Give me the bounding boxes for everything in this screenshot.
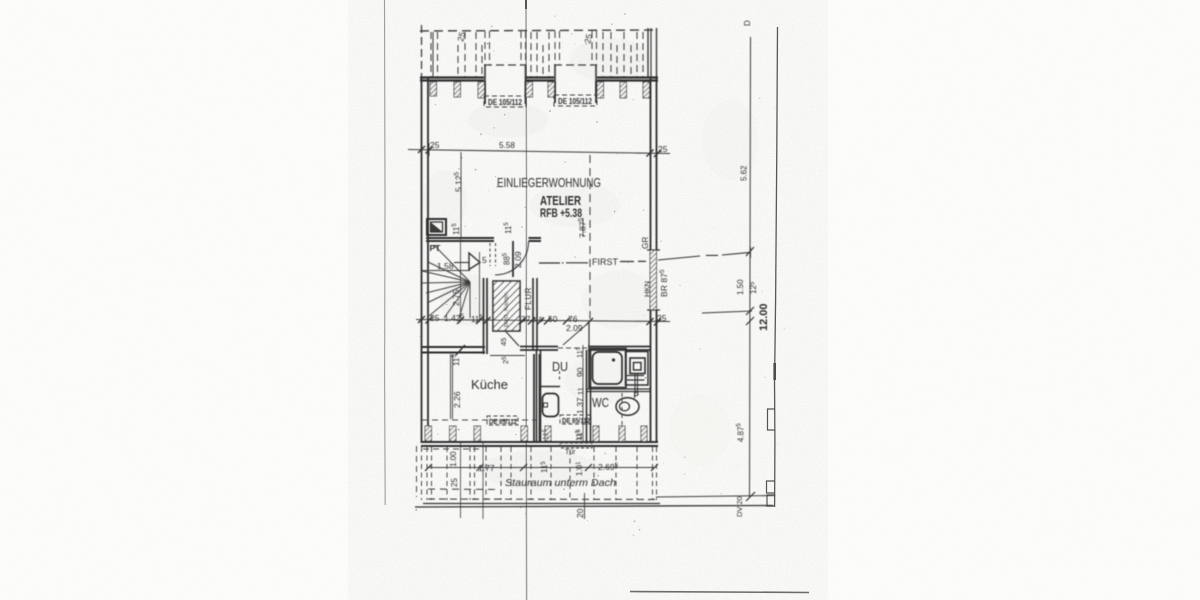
svg-text:Stauraum unterm Dach: Stauraum unterm Dach bbox=[505, 477, 616, 489]
svg-text:90: 90 bbox=[575, 367, 585, 377]
svg-text:Tür: Tür bbox=[565, 449, 576, 456]
svg-text:5.58: 5.58 bbox=[499, 140, 515, 150]
svg-text:1.77: 1.77 bbox=[478, 463, 495, 473]
svg-text:EINLIEGERWOHNUNG: EINLIEGERWOHNUNG bbox=[497, 175, 601, 190]
svg-text:25: 25 bbox=[450, 478, 459, 487]
svg-text:25: 25 bbox=[430, 140, 440, 150]
svg-text:20: 20 bbox=[575, 508, 585, 518]
svg-text:2.09: 2.09 bbox=[513, 251, 523, 268]
svg-text:1.58: 1.58 bbox=[437, 261, 454, 271]
svg-text:ATELIER: ATELIER bbox=[540, 193, 581, 208]
svg-text:BR 875: BR 875 bbox=[659, 269, 669, 297]
svg-text:5: 5 bbox=[532, 315, 536, 324]
svg-text:25: 25 bbox=[657, 313, 667, 323]
svg-text:2.75: 2.75 bbox=[451, 289, 461, 306]
svg-text:37: 37 bbox=[521, 314, 531, 324]
svg-text:DE 105/112: DE 105/112 bbox=[558, 96, 592, 106]
svg-text:1.37: 1.37 bbox=[575, 397, 585, 414]
svg-text:HKN: HKN bbox=[643, 281, 652, 297]
svg-text:FLUR: FLUR bbox=[524, 287, 533, 310]
svg-text:RFB +5.38: RFB +5.38 bbox=[540, 208, 582, 220]
svg-text:DE 85/112: DE 85/112 bbox=[489, 417, 517, 426]
svg-text:1.50: 1.50 bbox=[736, 279, 745, 295]
svg-text:5: 5 bbox=[539, 315, 543, 324]
svg-text:25: 25 bbox=[430, 313, 440, 323]
svg-text:11: 11 bbox=[576, 387, 585, 395]
svg-text:5.62: 5.62 bbox=[740, 166, 749, 181]
svg-text:DV 20: DV 20 bbox=[735, 496, 744, 517]
svg-text:Küche: Küche bbox=[471, 377, 508, 392]
svg-text:2.09: 2.09 bbox=[566, 323, 583, 333]
svg-text:50: 50 bbox=[548, 314, 558, 324]
svg-text:D: D bbox=[743, 20, 752, 26]
svg-text:DE 85/112: DE 85/112 bbox=[562, 416, 590, 425]
svg-text:45: 45 bbox=[499, 338, 508, 346]
svg-text:5: 5 bbox=[482, 255, 487, 265]
svg-text:DE 105/112: DE 105/112 bbox=[488, 97, 522, 107]
svg-text:1.00: 1.00 bbox=[449, 451, 458, 467]
svg-text:WC: WC bbox=[592, 395, 609, 410]
svg-text:FIRST: FIRST bbox=[592, 257, 618, 268]
svg-text:GR: GR bbox=[641, 237, 650, 249]
svg-text:PT: PT bbox=[430, 243, 442, 253]
svg-text:12.00: 12.00 bbox=[758, 303, 770, 331]
svg-text:best. Kamin: best. Kamin bbox=[503, 292, 510, 327]
svg-text:2.26: 2.26 bbox=[452, 391, 462, 408]
svg-text:25: 25 bbox=[658, 144, 668, 154]
